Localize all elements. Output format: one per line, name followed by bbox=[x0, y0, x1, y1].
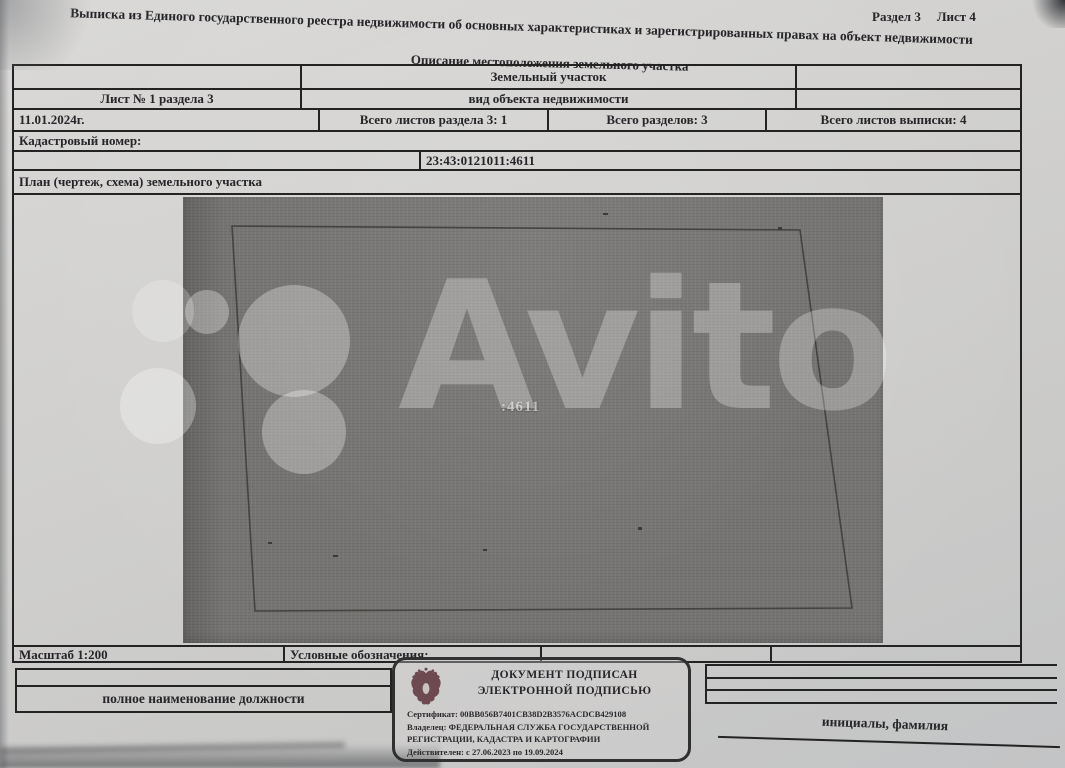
object-type-value: Земельный участок bbox=[302, 66, 797, 88]
parcel-boundary-drawing bbox=[183, 197, 883, 643]
row-totals: 11.01.2024г. Всего листов раздела 3: 1 В… bbox=[14, 110, 1020, 132]
double-headed-eagle-icon bbox=[409, 666, 443, 706]
object-type-caption: вид объекта недвижимости bbox=[302, 90, 797, 108]
sheet-number-cell: Лист № 1 раздела 3 bbox=[14, 90, 302, 108]
row-object-type: Земельный участок bbox=[14, 66, 1020, 90]
cell-empty-before-number bbox=[14, 152, 421, 169]
extract-date: 11.01.2024г. bbox=[14, 110, 320, 130]
stamp-title-line2: ЭЛЕКТРОННОЙ ПОДПИСЬЮ bbox=[447, 685, 682, 697]
parcel-number-label: :4611 bbox=[501, 399, 540, 416]
cell-empty-caption-right bbox=[797, 90, 1020, 108]
position-signature-space bbox=[17, 670, 390, 687]
stamp-title-line1: ДОКУМЕНТ ПОДПИСАН bbox=[447, 669, 682, 681]
plan-scan-image: :4611 bbox=[183, 197, 883, 643]
cell-empty-top-right bbox=[797, 66, 1020, 88]
sheet-number-top: Лист 4 bbox=[937, 9, 976, 24]
row-cadastral-number: 23:43:0121011:4611 bbox=[14, 152, 1020, 171]
ruling-line bbox=[705, 689, 1057, 691]
stamp-validity: Действителен: с 27.06.2023 по 19.09.2024 bbox=[407, 746, 684, 759]
stamp-owner-line1: Владелец: ФЕДЕРАЛЬНАЯ СЛУЖБА ГОСУДАРСТВЕ… bbox=[407, 721, 684, 734]
row-cadastral-label: Кадастровый номер: bbox=[14, 132, 1020, 152]
cell-empty-legend-2 bbox=[772, 647, 1020, 663]
total-sheets-section: Всего листов раздела 3: 1 bbox=[320, 110, 549, 130]
ruling-line-vertical bbox=[705, 664, 707, 704]
photo-shadow-edge bbox=[0, 0, 9, 768]
section-number: Раздел 3 bbox=[872, 9, 921, 24]
ruling-line bbox=[705, 664, 1057, 666]
stamp-title: ДОКУМЕНТ ПОДПИСАН ЭЛЕКТРОННОЙ ПОДПИСЬЮ bbox=[447, 669, 682, 697]
row-object-type-caption: Лист № 1 раздела 3 вид объекта недвижимо… bbox=[14, 90, 1020, 110]
section-sheet-info: Раздел 3Лист 4 bbox=[872, 9, 992, 25]
stamp-details: Сертификат: 00BB056B7401CB38D2B3576ACDCB… bbox=[407, 708, 684, 758]
photo-shadow-corner bbox=[0, 0, 100, 70]
scanned-document: Раздел 3Лист 4 Выписка из Единого госуда… bbox=[0, 0, 1065, 768]
total-sheets-extract: Всего листов выписки: 4 bbox=[767, 110, 1020, 130]
stamp-owner-line2: РЕГИСТРАЦИИ, КАДАСТРА И КАРТОГРАФИИ bbox=[407, 733, 684, 746]
ruling-line bbox=[705, 702, 1057, 704]
row-plan-label: План (чертеж, схема) земельного участка bbox=[14, 171, 1020, 195]
cadastral-number: 23:43:0121011:4611 bbox=[421, 152, 1020, 169]
position-box: полное наименование должности bbox=[15, 668, 392, 713]
scale-label: Масштаб 1:200 bbox=[14, 647, 285, 663]
photo-shadow-corner bbox=[1031, 0, 1065, 28]
total-sections: Всего разделов: 3 bbox=[549, 110, 767, 130]
photo-shadow-bottom bbox=[0, 742, 440, 768]
ruling-line bbox=[705, 677, 1057, 679]
position-caption: полное наименование должности bbox=[17, 687, 390, 711]
stamp-certificate: Сертификат: 00BB056B7401CB38D2B3576ACDCB… bbox=[407, 708, 684, 721]
cadastral-label: Кадастровый номер: bbox=[14, 132, 1020, 150]
plan-label: План (чертеж, схема) земельного участка bbox=[14, 171, 1020, 193]
